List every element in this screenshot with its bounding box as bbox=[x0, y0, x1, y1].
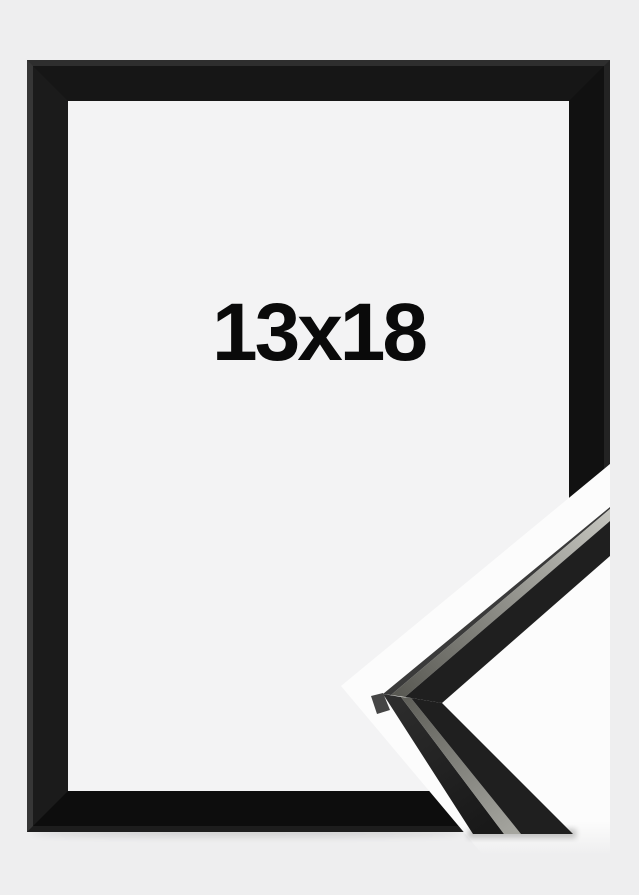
frame-corner-detail bbox=[0, 0, 639, 895]
product-photo: 13x18 bbox=[0, 0, 639, 895]
